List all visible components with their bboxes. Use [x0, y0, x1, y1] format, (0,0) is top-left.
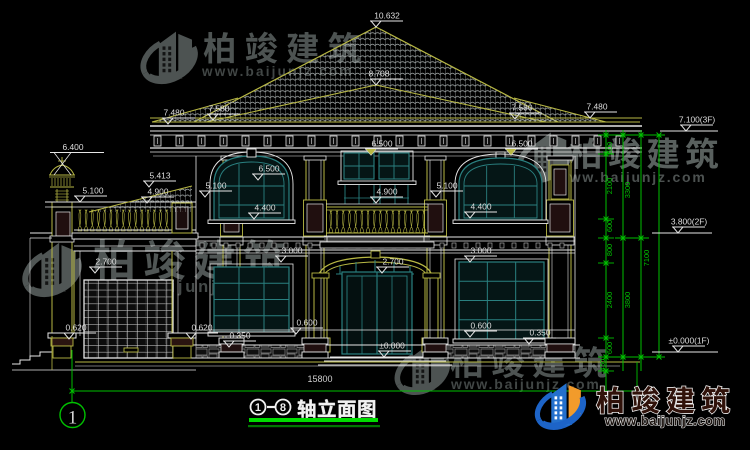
svg-text:600: 600	[605, 342, 614, 354]
svg-text:3.800(2F): 3.800(2F)	[671, 217, 708, 227]
svg-text:0.350: 0.350	[230, 331, 251, 341]
svg-text:4.400: 4.400	[471, 202, 492, 212]
svg-text:7.480: 7.480	[164, 108, 185, 118]
svg-text:2.700: 2.700	[383, 257, 404, 267]
svg-text:5.100: 5.100	[206, 181, 227, 191]
svg-text:2400: 2400	[605, 292, 614, 308]
svg-text:±0.000(1F): ±0.000(1F)	[669, 336, 710, 346]
svg-text:7.580: 7.580	[512, 103, 533, 113]
svg-text:4.400: 4.400	[255, 203, 276, 213]
svg-text:6.500: 6.500	[372, 139, 393, 149]
svg-text:±0.000: ±0.000	[379, 341, 405, 351]
svg-text:8.708: 8.708	[369, 69, 390, 79]
svg-text:7.100(3F): 7.100(3F)	[679, 115, 716, 125]
svg-text:7100: 7100	[642, 250, 651, 266]
svg-text:10.632: 10.632	[374, 11, 400, 21]
svg-text:0.620: 0.620	[66, 323, 87, 333]
svg-text:600: 600	[605, 142, 614, 154]
svg-text:2100: 2100	[605, 178, 614, 194]
svg-text:3800: 3800	[623, 292, 632, 308]
svg-text:450: 450	[598, 359, 607, 371]
svg-text:5.100: 5.100	[83, 186, 104, 196]
svg-text:4.900: 4.900	[148, 187, 169, 197]
svg-text:7.580: 7.580	[209, 104, 230, 114]
svg-text:0.600: 0.600	[471, 321, 492, 331]
svg-text:4.900: 4.900	[377, 187, 398, 197]
svg-text:800: 800	[605, 244, 614, 256]
svg-text:3.000: 3.000	[471, 246, 492, 256]
svg-text:15800: 15800	[307, 374, 332, 384]
svg-text:0.620: 0.620	[192, 323, 213, 333]
svg-text:6.500: 6.500	[259, 164, 280, 174]
svg-text:0.600: 0.600	[297, 318, 318, 328]
svg-text:5.100: 5.100	[437, 181, 458, 191]
svg-text:3.000: 3.000	[282, 246, 303, 256]
svg-text:6.500: 6.500	[512, 139, 533, 149]
svg-text:3300: 3300	[623, 182, 632, 198]
svg-text:7.480: 7.480	[587, 102, 608, 112]
svg-text:6.400: 6.400	[63, 142, 84, 152]
svg-text:600: 600	[605, 220, 614, 232]
svg-text:5.413: 5.413	[150, 171, 171, 181]
svg-text:0.350: 0.350	[530, 328, 551, 338]
svg-text:2.700: 2.700	[96, 257, 117, 267]
